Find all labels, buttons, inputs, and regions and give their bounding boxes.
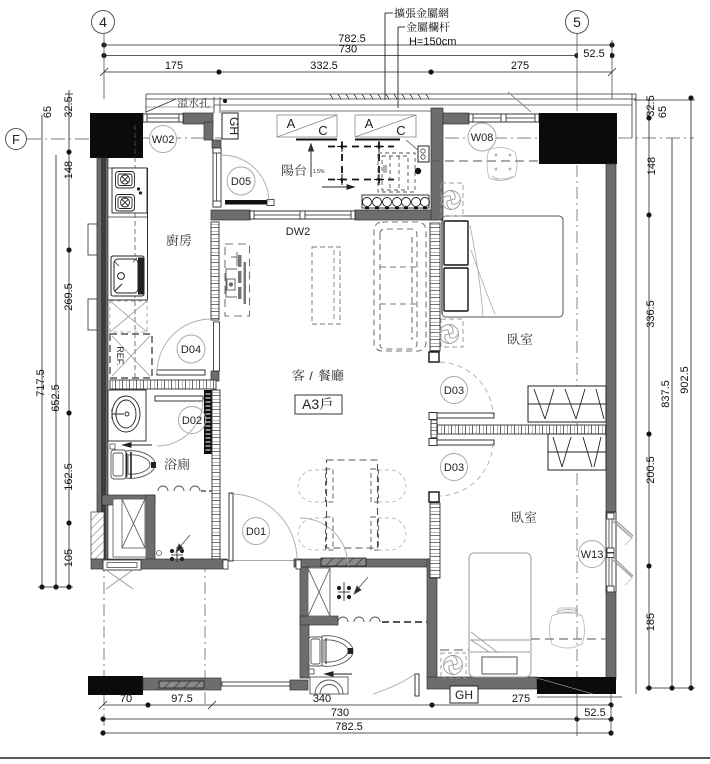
svg-text:185: 185 (645, 613, 657, 631)
svg-text:W08: W08 (471, 132, 494, 144)
svg-text:269.5: 269.5 (63, 283, 75, 311)
svg-text:730: 730 (339, 44, 357, 56)
svg-text:D03: D03 (444, 385, 464, 397)
svg-text:148: 148 (646, 157, 658, 175)
svg-text:32.5: 32.5 (63, 96, 75, 117)
svg-text:C: C (396, 123, 405, 138)
svg-text:837.5: 837.5 (660, 380, 672, 408)
svg-text:4: 4 (99, 14, 107, 30)
svg-text:D01: D01 (246, 526, 266, 538)
svg-text:97.5: 97.5 (171, 693, 192, 705)
svg-text:A: A (365, 116, 374, 131)
svg-text:52.5: 52.5 (583, 48, 604, 60)
svg-text:340: 340 (313, 693, 331, 705)
svg-text:REF.: REF. (115, 346, 125, 366)
svg-text:332.5: 332.5 (310, 60, 338, 72)
svg-text:GH: GH (455, 688, 473, 702)
svg-text:162.5: 162.5 (63, 463, 75, 491)
svg-text:A: A (287, 116, 296, 131)
svg-text:D03: D03 (444, 462, 464, 474)
svg-text:F: F (12, 132, 20, 147)
svg-text:148: 148 (63, 161, 75, 179)
svg-text:730: 730 (331, 707, 349, 719)
svg-text:C: C (318, 123, 327, 138)
svg-text:H=150cm: H=150cm (409, 36, 456, 48)
svg-text:275: 275 (511, 60, 529, 72)
svg-text:D05: D05 (231, 176, 251, 188)
svg-text:65: 65 (42, 106, 54, 118)
svg-text:W13: W13 (581, 549, 604, 561)
svg-text:902.5: 902.5 (679, 366, 691, 394)
svg-text:W02: W02 (152, 134, 175, 146)
svg-text:175: 175 (165, 60, 183, 72)
svg-text:DW2: DW2 (286, 226, 310, 238)
svg-text:52.5: 52.5 (584, 707, 605, 719)
svg-text:782.5: 782.5 (335, 721, 363, 733)
svg-text:717.5: 717.5 (35, 369, 47, 397)
svg-text:32.5: 32.5 (645, 95, 657, 116)
svg-text:652.5: 652.5 (50, 384, 62, 412)
svg-text:1.5%: 1.5% (313, 169, 325, 175)
svg-text:D04: D04 (181, 344, 201, 356)
svg-text:D02: D02 (182, 415, 202, 427)
svg-text:A3: A3 (302, 396, 319, 412)
svg-text:275: 275 (512, 693, 530, 705)
svg-text:105: 105 (63, 549, 75, 567)
svg-text:5: 5 (573, 14, 581, 30)
svg-text:65: 65 (657, 106, 669, 118)
svg-text:GH: GH (227, 117, 241, 135)
svg-text:200.5: 200.5 (645, 456, 657, 484)
svg-text:336.5: 336.5 (645, 300, 657, 328)
